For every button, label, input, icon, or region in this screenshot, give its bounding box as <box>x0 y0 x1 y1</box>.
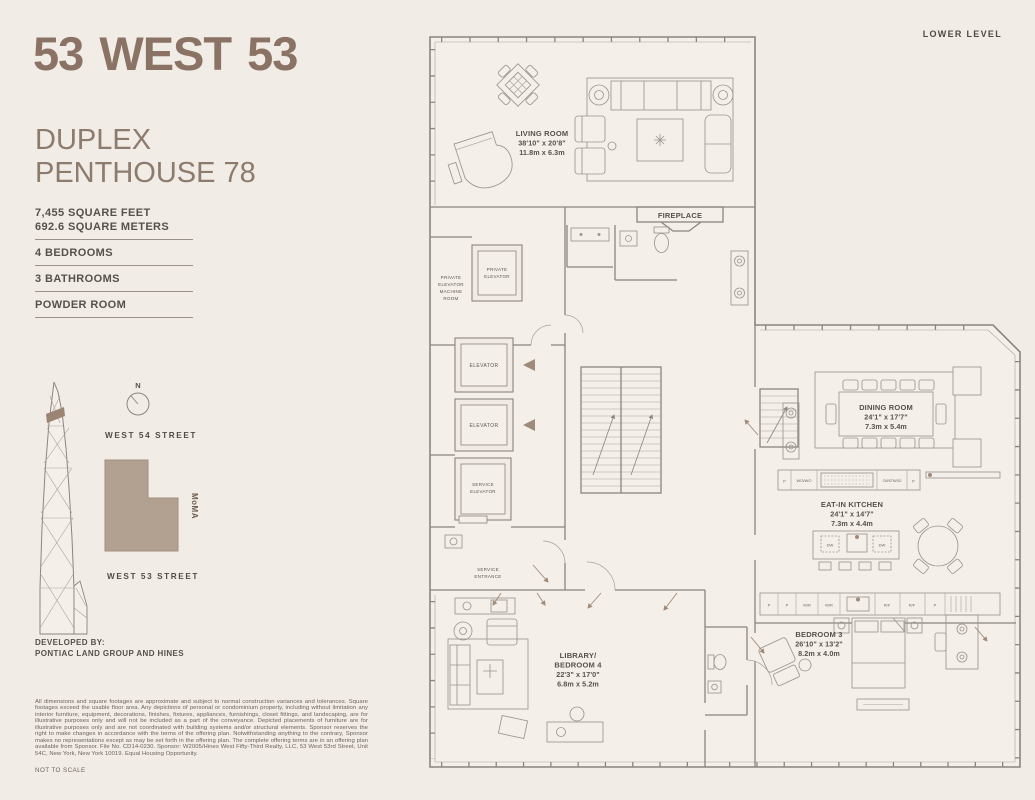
elevator-a: ELEVATOR <box>455 338 513 392</box>
kitchen-dims-ft: 24'1" x 14'7" <box>830 510 874 519</box>
unit-title-line2: PENTHOUSE 78 <box>35 157 256 190</box>
bed-icon <box>852 618 905 688</box>
kitchen-label: EAT-IN KITCHEN <box>821 500 883 509</box>
fireplace-label: FIREPLACE <box>658 211 702 220</box>
machine-room-label-1: PRIVATE <box>441 275 462 280</box>
lounge-chair-icon <box>953 367 981 395</box>
dining-room-label: DINING ROOM <box>859 403 913 412</box>
compass-icon: N <box>119 379 159 421</box>
elevator-b: ELEVATOR <box>455 399 513 451</box>
stool-icon <box>839 562 851 570</box>
building-footprint <box>105 460 178 551</box>
street-label-west-54: WEST 54 STREET <box>105 431 197 440</box>
armchair-icon <box>575 116 605 142</box>
machine-room-label-2: ELEVATOR <box>438 282 464 287</box>
pantry-label: P <box>768 603 771 608</box>
pantry-label: P <box>934 603 937 608</box>
elevator-a-label: ELEVATOR <box>469 363 498 369</box>
dining-room-dims-ft: 24'1" x 17'7" <box>864 413 908 422</box>
bedroom-3-dims-m: 8.2m x 4.0m <box>798 649 840 658</box>
moma-label: MoMA <box>190 493 199 519</box>
bedroom-3-dims-ft: 26'10" x 13'2" <box>795 640 843 649</box>
legal-disclaimer: All dimensions and square footages are a… <box>35 699 368 757</box>
side-table-icon <box>589 85 609 105</box>
developer-heading: DEVELOPED BY: <box>35 637 184 648</box>
machine-room-label-4: ROOM <box>443 296 458 301</box>
north-needle <box>131 396 138 404</box>
coffee-steam-speed-label: CM/STM/SO <box>883 479 902 483</box>
living-room-dims-m: 11.8m x 6.3m <box>519 148 565 157</box>
stat-bedrooms: 4 BEDROOMS <box>35 240 193 266</box>
kitchen-dims-m: 7.3m x 4.4m <box>831 519 873 528</box>
unit-title-line1: DUPLEX <box>35 124 256 157</box>
service-entrance-label-2: ENTRANCE <box>474 574 501 579</box>
pantry-label: P <box>783 479 786 484</box>
bedroom-3-label: BEDROOM 3 <box>795 630 842 639</box>
library-sofa-icon <box>450 645 470 705</box>
breakfast-table <box>913 518 964 574</box>
developer-name: PONTIAC LAND GROUP AND HINES <box>35 648 184 659</box>
service-elevator-label-2: ELEVATOR <box>470 489 496 494</box>
developer-credit: DEVELOPED BY: PONTIAC LAND GROUP AND HIN… <box>35 637 184 659</box>
stool-icon <box>819 562 831 570</box>
tower-annex <box>74 581 87 634</box>
living-room-label: LIVING ROOM <box>516 129 569 138</box>
pantry-label: P <box>786 603 789 608</box>
street-label-west-53: WEST 53 STREET <box>107 572 199 581</box>
wine-refrigerator-label: W/R <box>825 603 833 608</box>
pot-filler-icon <box>928 473 932 477</box>
armchair-icon <box>575 148 605 174</box>
stat-area-ft: 7,455 SQUARE FEET <box>35 206 193 220</box>
desk-chair-icon <box>570 707 584 721</box>
library-label-1: LIBRARY/ <box>560 651 597 660</box>
stat-bathrooms: 3 BATHROOMS <box>35 266 193 292</box>
armchair-icon <box>487 619 517 645</box>
stat-powder-room: POWDER ROOM <box>35 292 193 318</box>
library-dims-m: 6.8m x 5.2m <box>557 680 599 689</box>
not-to-scale-note: NOT TO SCALE <box>35 767 86 774</box>
pantry-label: P <box>912 479 915 484</box>
stats-list: 7,455 SQUARE FEET 692.6 SQUARE METERS 4 … <box>35 206 193 318</box>
stool-icon <box>879 562 891 570</box>
elevator-b-label: ELEVATOR <box>469 423 498 429</box>
library-label-2: BEDROOM 4 <box>554 661 602 670</box>
sofa-icon <box>611 81 711 110</box>
lounge-chair-icon <box>953 439 981 467</box>
service-elevator-label-1: SERVICE <box>472 482 494 487</box>
round-table-icon <box>454 622 472 640</box>
wall-ovens-label: WO/WO <box>797 478 812 483</box>
refrigerator-label: R/F <box>884 603 891 608</box>
service-entrance-label-1: SERVICE <box>477 567 499 572</box>
stat-area-m: 692.6 SQUARE METERS <box>35 220 193 234</box>
tower-illustration <box>32 378 94 640</box>
stool-icon <box>859 562 871 570</box>
site-map: MoMA <box>100 455 210 561</box>
floorplan-sheet: 53 WEST 53 LOWER LEVEL DUPLEX PENTHOUSE … <box>0 0 1035 800</box>
stat-area: 7,455 SQUARE FEET 692.6 SQUARE METERS <box>35 206 193 240</box>
machine-room-label-3: MACHINE <box>440 289 463 294</box>
page-title: 53 WEST 53 <box>33 26 297 81</box>
unit-title: DUPLEX PENTHOUSE 78 <box>35 124 256 190</box>
dining-room-dims-m: 7.3m x 5.4m <box>865 422 907 431</box>
dishwasher-label: DW <box>879 543 886 548</box>
library-dims-ft: 22'3" x 17'0" <box>556 670 600 679</box>
side-table-icon <box>713 85 733 105</box>
dishwasher-label: DW <box>827 543 834 548</box>
service-elevator: SERVICE ELEVATOR <box>455 458 511 523</box>
wine-refrigerator-label: W/R <box>803 603 811 608</box>
private-elevator: PRIVATE ELEVATOR <box>472 245 522 301</box>
private-elevator-label-2: ELEVATOR <box>484 274 510 279</box>
refrigerator-label: R/F <box>909 603 916 608</box>
living-room-dims-ft: 38'10" x 20'8" <box>518 139 566 148</box>
compass-north-label: N <box>135 381 140 390</box>
private-elevator-label-1: PRIVATE <box>487 267 508 272</box>
floor-plan: FIREPLACE PRIVATE ELEVATOR PRIVATE ELEVA… <box>415 15 1035 790</box>
desk-chair-icon <box>935 633 946 651</box>
